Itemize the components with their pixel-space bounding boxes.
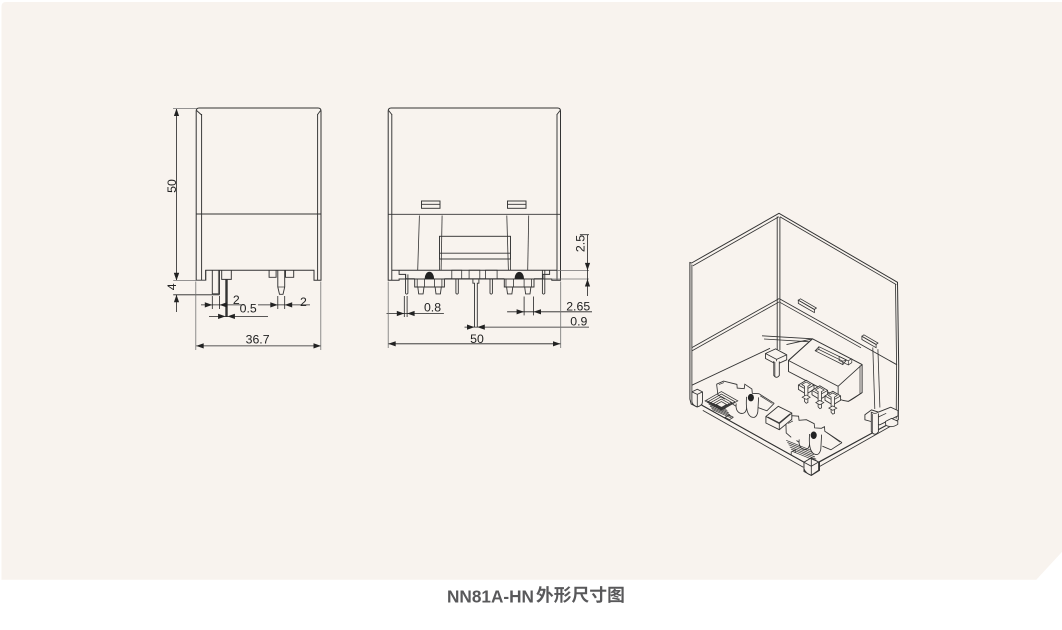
svg-text:NN81A-HN: NN81A-HN bbox=[447, 587, 534, 607]
svg-text:0.5: 0.5 bbox=[240, 302, 257, 316]
svg-text:2: 2 bbox=[300, 295, 307, 309]
svg-text:0.8: 0.8 bbox=[424, 300, 441, 314]
svg-text:50: 50 bbox=[470, 332, 484, 346]
svg-text:50: 50 bbox=[165, 179, 179, 193]
svg-text:0.9: 0.9 bbox=[570, 315, 587, 329]
svg-text:4: 4 bbox=[165, 283, 179, 290]
svg-text:2.5: 2.5 bbox=[574, 235, 588, 252]
svg-text:36.7: 36.7 bbox=[246, 333, 270, 347]
svg-text:2.65: 2.65 bbox=[566, 300, 590, 314]
